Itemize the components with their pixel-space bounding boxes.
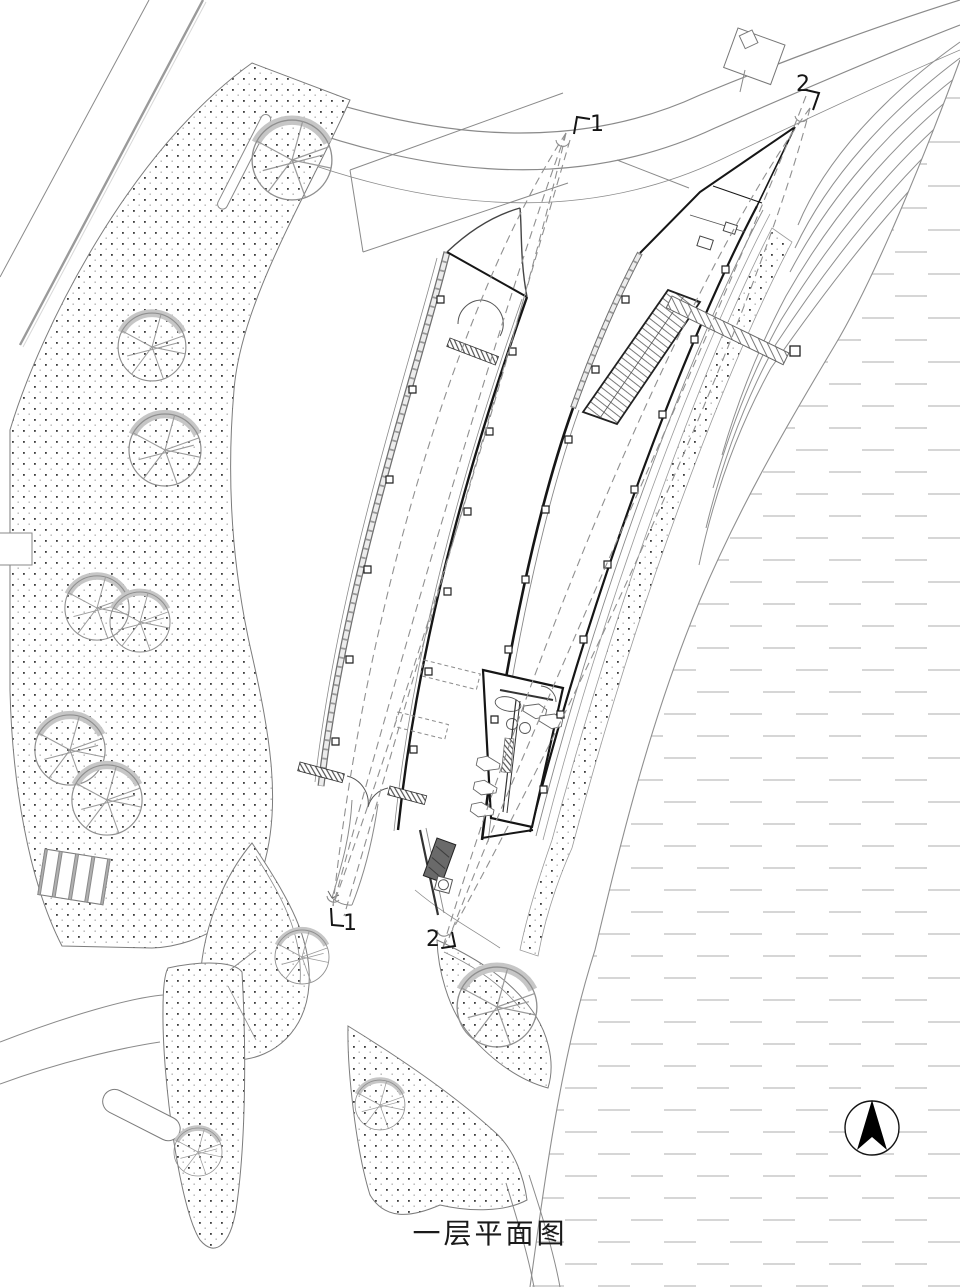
entry-door-north	[447, 300, 504, 365]
plan-title: 一层平面图	[412, 1217, 567, 1250]
section-label-bottom-2: 2	[426, 927, 440, 952]
section-label-bottom-1: 1	[343, 911, 357, 936]
water-area	[530, 60, 960, 1287]
island-c	[437, 940, 551, 1088]
ramp-path	[328, 800, 378, 905]
section-marker-top-2: 2	[796, 72, 819, 110]
north-arrow-icon	[845, 1100, 899, 1155]
bench-planter-group	[38, 849, 110, 905]
entry-door-south	[298, 762, 427, 807]
toilet-core	[469, 670, 563, 827]
floor-plan-drawing: 1 2 1 2 一层平面图	[0, 0, 960, 1287]
furniture-dashed	[394, 660, 480, 739]
grate-mat	[423, 838, 455, 882]
section-label-top-1: 1	[590, 112, 604, 137]
planting-left	[10, 63, 350, 948]
water-surface	[530, 60, 960, 1287]
section-label-top-2: 2	[796, 72, 810, 97]
section-marker-top-1: 1	[574, 112, 604, 137]
pier-post	[790, 346, 800, 356]
road-structure	[724, 28, 785, 92]
site-fixture	[434, 876, 452, 893]
site-plan-sheet: 1 2 1 2 一层平面图	[0, 0, 960, 1287]
section-marker-bottom-1: 1	[331, 908, 357, 936]
island-b-wedge	[163, 963, 245, 1248]
planting-notch	[0, 533, 32, 565]
